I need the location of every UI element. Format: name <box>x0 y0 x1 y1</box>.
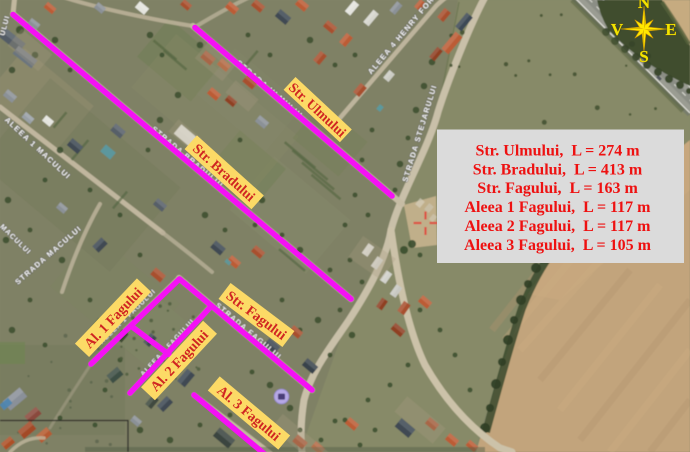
svg-text:Str. Ulmului, L = 274 m: Str. Ulmului, L = 274 m <box>475 142 640 159</box>
svg-text:S: S <box>639 47 648 66</box>
svg-text:Aleea 3 Fagului, L = 105 m: Aleea 3 Fagului, L = 105 m <box>464 237 652 254</box>
svg-text:E: E <box>665 20 676 39</box>
svg-text:N: N <box>638 0 651 12</box>
svg-text:Str. Fagului, L = 163 m: Str. Fagului, L = 163 m <box>477 180 638 197</box>
svg-text:Aleea 1 Fagului, L = 117 m: Aleea 1 Fagului, L = 117 m <box>464 199 651 216</box>
svg-text:Aleea 2 Fagului, L = 117 m: Aleea 2 Fagului, L = 117 m <box>464 218 651 235</box>
svg-text:V: V <box>611 20 624 39</box>
svg-text:Str. Bradului, L = 413 m: Str. Bradului, L = 413 m <box>473 161 643 178</box>
